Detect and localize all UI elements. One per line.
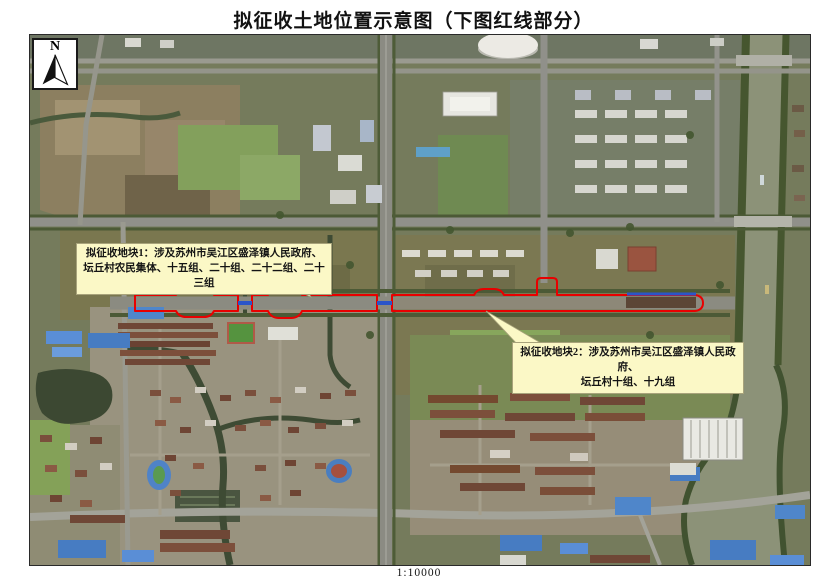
page-title: 拟征收土地位置示意图（下图红线部分） <box>0 6 827 33</box>
callout-parcel-1-line1: 拟征收地块1：涉及苏州市吴江区盛泽镇人民政府、 <box>80 246 328 261</box>
land-acquisition-notice-page: 拟征收土地位置示意图（下图红线部分） <box>0 0 827 585</box>
callout-parcel-1: 拟征收地块1：涉及苏州市吴江区盛泽镇人民政府、 坛丘村农民集体、十五组、二十组、… <box>76 243 332 295</box>
callout-parcel-1-line2: 坛丘村农民集体、十五组、二十组、二十二组、二十三组 <box>80 261 328 291</box>
callout-parcel-2-line2: 坛丘村十组、十九组 <box>516 375 740 390</box>
satellite-imagery <box>30 35 810 565</box>
map-scale: 1:10000 <box>29 567 809 579</box>
callout-parcel-2: 拟征收地块2：涉及苏州市吴江区盛泽镇人民政府、 坛丘村十组、十九组 <box>512 342 744 394</box>
north-arrow: N <box>32 38 78 90</box>
north-arrow-icon <box>34 53 76 87</box>
north-label: N <box>34 40 76 53</box>
callout-parcel-2-line1: 拟征收地块2：涉及苏州市吴江区盛泽镇人民政府、 <box>516 345 740 375</box>
map-panel: N 拟征收地块1：涉及苏州市吴江区盛泽镇人民政府、 坛丘村农民集体、十五组、二十… <box>29 34 811 566</box>
